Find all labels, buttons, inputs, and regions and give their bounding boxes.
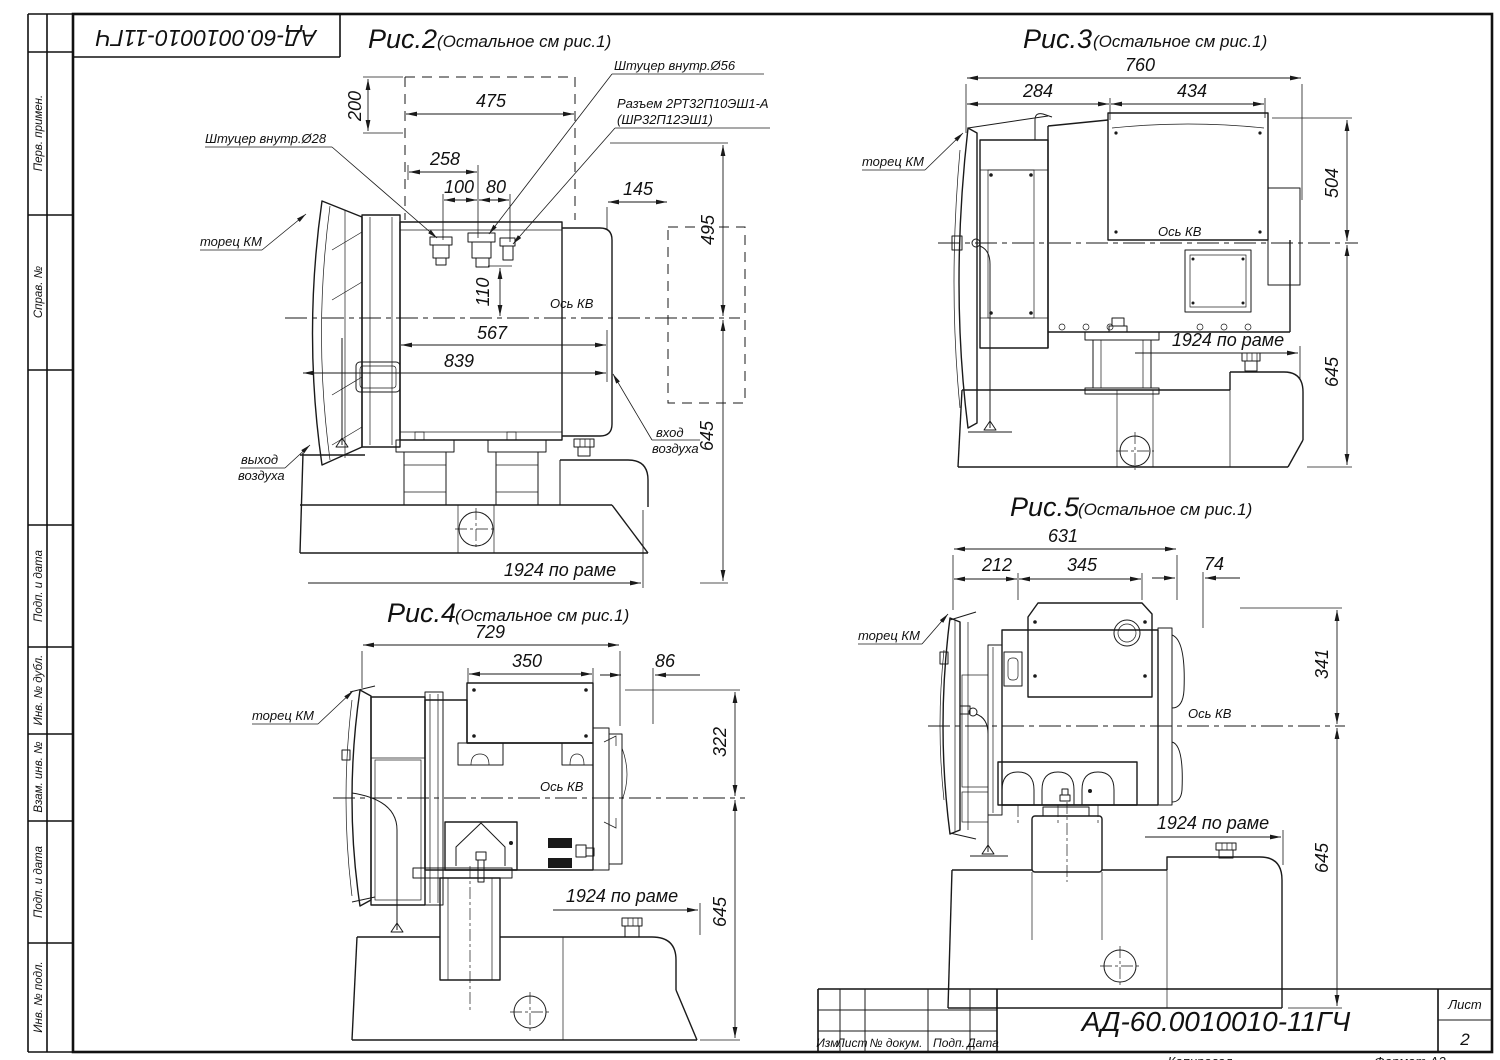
fig2-label-connector-1: Разъем 2РТ32П10ЭШ1-А [617,96,769,111]
stamp-doc-number: АД-60.0010010-11ГЧ [95,25,318,51]
tb-sheet-label: Лист [1447,997,1482,1012]
fig3-dim-645: 645 [1322,356,1342,387]
fig2-machine-view: Ось КВ [285,77,745,553]
fig2-tank-cap [574,439,594,456]
fig5-dim-345: 345 [1067,555,1098,575]
fig4-terminal-block-2 [548,858,572,868]
fig2-axis-label: Ось КВ [550,296,594,311]
drawing-sheet-svg: Перв. примен. Справ. № Подп. и дата Инв.… [0,0,1500,1060]
fig5-hatch-grille-lower [962,792,988,822]
fig2-dim-567: 567 [477,323,508,343]
fig4-dim-645: 645 [710,896,730,927]
fig3-axis-label: Ось КВ [1158,224,1202,239]
fig3-tank-cap [1242,353,1260,371]
fig4-title: Рис.4 [387,598,456,628]
tb-col-podp: Подп. [933,1036,965,1050]
margin-label-perv-primen: Перв. примен. [33,95,45,171]
fig2-label-connector-2: (ШР32П12ЭШ1) [617,112,713,127]
fig5-dim-1924: 1924 по раме [1157,813,1269,833]
figure-5: Рис.5 (Остальное см рис.1) [858,492,1345,1008]
margin-label-vzam-inv: Взам. инв. № [33,741,45,813]
tb-col-list: Лист [836,1036,868,1050]
fig4-caption: Рис.4 (Остальное см рис.1) [387,598,629,628]
fig2-dim-475: 475 [476,91,507,111]
fig2-dim-100: 100 [444,177,474,197]
fig3-dim-1924: 1924 по раме [1172,330,1284,350]
fig3-top-box [1108,113,1268,240]
margin-label-inv-podl: Инв. № подл. [33,961,45,1032]
title-block: Изм. Лист № докум. Подп. Дата АД-60.0010… [816,989,1492,1052]
fig3-front-grille [988,170,1034,318]
fig5-dim-645: 645 [1312,842,1332,873]
fig3-caption: Рис.3 (Остальное см рис.1) [1023,24,1267,54]
margin-label-podp-data-1: Подп. и дата [33,550,45,622]
fig3-title: Рис.3 [1023,24,1092,54]
fig3-dim-760: 760 [1125,55,1155,75]
fig5-leaders: торец КМ [858,614,948,644]
margin-labels: Перв. примен. Справ. № Подп. и дата Инв.… [33,95,45,1033]
fig4-label-km-face: торец КМ [252,708,314,723]
fig5-subtitle: (Остальное см рис.1) [1078,500,1252,519]
fig2-dim-258: 258 [429,149,460,169]
fig2-label-air-in-1: вход [656,425,684,440]
fig5-label-km-face: торец КМ [858,628,920,643]
footer-copied-label: Копировал [1168,1054,1233,1060]
fig2-label-air-out-1: выход [241,452,278,467]
margin-label-podp-data-2: Подп. и дата [33,846,45,918]
fig2-dim-1924: 1924 по раме [504,560,616,580]
fig2-title: Рис.2 [368,24,437,54]
fig5-dimensions: 631 212 345 74 341 645 1924 по раме [953,526,1342,1008]
fig4-axis-label: Ось КВ [540,779,584,794]
fig2-label-km-face: торец КМ [200,234,262,249]
fig4-dim-86: 86 [655,651,676,671]
doc-number-stamp: АД-60.0010010-11ГЧ [95,25,318,51]
sheet-footer: Копировал Формат А3 [1168,1054,1447,1060]
fig2-label-fitting28: Штуцер внутр.Ø28 [205,131,327,146]
tb-col-dokum: № докум. [870,1036,923,1050]
fig4-machine-view: Ось КВ [333,683,745,1040]
fig4-dim-1924: 1924 по раме [566,886,678,906]
tb-col-data: Дата [965,1036,999,1050]
tb-doc-number: АД-60.0010010-11ГЧ [1080,1006,1351,1037]
figure-2: Рис.2 (Остальное см рис.1) [200,24,770,588]
fig4-dim-350: 350 [512,651,542,671]
fig4-leaders: торец КМ [252,691,353,724]
fig4-mesh-grille [375,760,421,900]
fig2-dim-200: 200 [345,91,365,122]
fig5-dim-631: 631 [1048,526,1078,546]
fig3-dim-284: 284 [1022,81,1053,101]
fig2-dim-645: 645 [697,420,717,451]
fig2-dim-839: 839 [444,351,474,371]
fig2-label-fitting56: Штуцер внутр.Ø56 [614,58,736,73]
fig4-tank-cap [622,918,642,937]
fig2-caption: Рис.2 (Остальное см рис.1) [368,24,611,54]
fig4-dim-729: 729 [475,622,505,642]
fig2-dim-80: 80 [486,177,506,197]
fig2-dimensions: 200 475 258 100 80 145 495 110 567 [303,77,728,588]
fig4-dimensions: 729 350 86 322 645 1924 по раме [362,622,740,1040]
figure-4: Рис.4 (Остальное см рис.1) [252,598,745,1040]
fig4-dim-322: 322 [710,727,730,757]
fig5-caption: Рис.5 (Остальное см рис.1) [1010,492,1252,522]
margin-label-inv-dubl: Инв. № дубл. [33,655,45,726]
fig2-label-air-in-2: воздуха [652,441,699,456]
fig3-dim-434: 434 [1177,81,1207,101]
fig3-subtitle: (Остальное см рис.1) [1093,32,1267,51]
figure-3: Рис.3 (Остальное см рис.1) [862,24,1358,470]
sheet-frame [28,14,1492,1052]
fig4-terminal-block-1 [548,838,572,848]
fig4-top-box [467,683,593,743]
margin-label-sprav-n: Справ. № [33,265,45,318]
fig5-dim-341: 341 [1312,649,1332,679]
fig5-dim-74: 74 [1204,554,1224,574]
fig2-dim-145: 145 [623,179,654,199]
drawing-page: Перв. примен. Справ. № Подп. и дата Инв.… [0,0,1500,1060]
fig3-dimensions: 760 284 434 504 645 1924 по раме [966,55,1352,467]
fig2-label-air-out-2: воздуха [238,468,285,483]
fig3-label-km-face: торец КМ [862,154,924,169]
fig3-machine-view: Ось КВ [938,113,1358,470]
fig2-subtitle: (Остальное см рис.1) [437,32,611,51]
fig5-dim-212: 212 [981,555,1012,575]
fig5-machine-view: Ось КВ [928,603,1345,1008]
tb-sheet-number: 2 [1459,1030,1470,1049]
fig5-axis-label: Ось КВ [1188,706,1232,721]
fig3-leaders: торец КМ [862,133,963,170]
fig2-leaders: Штуцер внутр.Ø28 Штуцер внутр.Ø56 Разъем… [200,58,770,483]
fig5-top-box [1028,603,1152,697]
fig5-title: Рис.5 [1010,492,1080,522]
fig3-dim-504: 504 [1322,168,1342,198]
fig5-tank-cap [1216,843,1236,858]
fig5-hatch-grille-upper [962,675,988,787]
fig2-dim-495: 495 [698,214,718,245]
fig2-dim-110: 110 [473,278,493,307]
fig3-side-grille [1190,255,1246,307]
footer-format-label: Формат А3 [1374,1054,1446,1060]
